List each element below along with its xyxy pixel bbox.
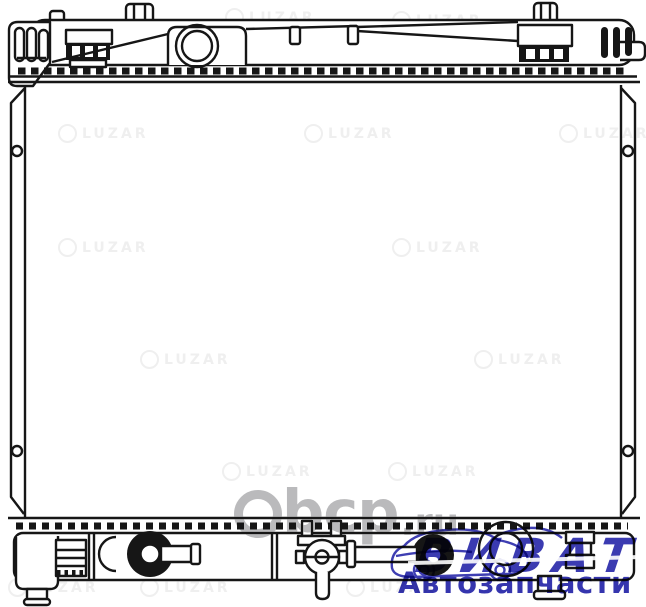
seller-logo-subtitle: Автозапчасти bbox=[398, 569, 632, 598]
seller-logo-car-sketch bbox=[0, 0, 646, 607]
product-image-radiator-drawing: LUZAR LUZAR LUZAR LUZAR LUZAR LUZAR LUZA… bbox=[0, 0, 646, 607]
